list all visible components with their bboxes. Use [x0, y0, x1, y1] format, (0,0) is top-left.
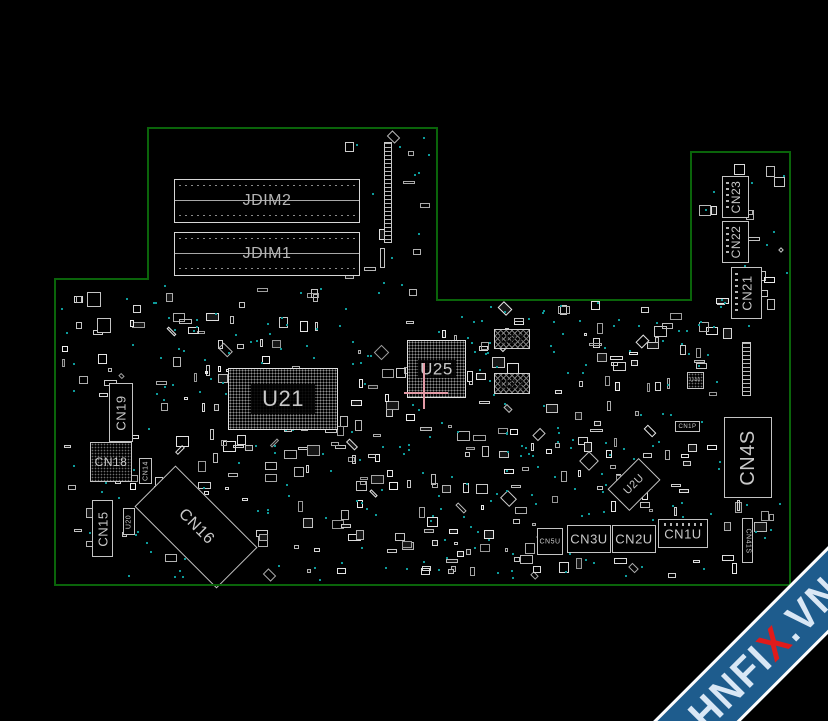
component-label-cn15: CN15	[96, 511, 109, 546]
component-label-cn1p: CN1P	[678, 424, 696, 430]
component-label-cn18: CN18	[95, 456, 128, 468]
component-cn18[interactable]: CN18	[90, 442, 132, 482]
component-label-u21: U21	[262, 388, 304, 410]
component-u27[interactable]: U27	[494, 329, 530, 349]
component-label-cn19: CN19	[115, 395, 128, 430]
component-bar1[interactable]	[380, 248, 385, 268]
component-cn16[interactable]: CN16	[134, 465, 257, 588]
component-cn14[interactable]: CN14	[139, 458, 152, 484]
component-jdim2[interactable]: JDIM2	[174, 179, 360, 223]
component-label-cn1u: CN1U	[664, 527, 701, 540]
component-cn15[interactable]: CN15	[92, 500, 113, 557]
component-dia1[interactable]	[579, 451, 599, 471]
component-label-jdim1: JDIM1	[243, 246, 292, 262]
component-cn2u[interactable]: CN2U	[612, 525, 656, 553]
component-label-cn14: CN14	[142, 461, 149, 481]
component-sq2[interactable]	[97, 318, 111, 333]
component-u40[interactable]: U40	[687, 372, 704, 389]
component-layer: JDIM2JDIM1CN23CN22CN21U21U25U27U22CN19CN…	[0, 0, 828, 721]
boardview-canvas[interactable]: JDIM2JDIM1CN23CN22CN21U21U25U27U22CN19CN…	[0, 0, 828, 721]
component-label-cn2u: CN2U	[615, 533, 652, 546]
component-label-u25: U25	[420, 361, 453, 378]
component-u22[interactable]: U22	[494, 373, 530, 394]
component-sq4[interactable]	[76, 322, 82, 329]
component-label-cn4s: CN4S	[738, 430, 758, 485]
component-cn19[interactable]: CN19	[109, 383, 133, 442]
component-sq3[interactable]	[76, 296, 82, 303]
component-label-u22: U22	[499, 377, 524, 390]
component-jdim1[interactable]: JDIM1	[174, 232, 360, 276]
component-cn21[interactable]: CN21	[731, 267, 762, 319]
component-cn4s[interactable]: CN4S	[724, 417, 772, 498]
component-label-cn21: CN21	[740, 275, 753, 310]
component-cn41s[interactable]: CN41S	[742, 518, 753, 563]
component-label-cn5u: CN5U	[539, 538, 560, 545]
component-sq1[interactable]	[87, 292, 101, 307]
component-cn3u[interactable]: CN3U	[567, 525, 611, 553]
component-cn1u[interactable]: CN1U	[658, 519, 708, 548]
component-label-cn22: CN22	[730, 226, 742, 259]
component-label-u27: U27	[499, 333, 524, 346]
component-riser1[interactable]	[384, 142, 392, 243]
component-lad2[interactable]	[742, 342, 751, 396]
component-cn5u[interactable]: CN5U	[537, 528, 563, 555]
component-label-cn16: CN16	[175, 506, 217, 548]
component-label-u20: U20	[126, 514, 133, 528]
component-u2u[interactable]: U2U	[607, 457, 660, 510]
component-u21[interactable]: U21	[228, 368, 338, 430]
component-label-cn41s: CN41S	[744, 528, 751, 553]
component-cn22[interactable]: CN22	[722, 221, 749, 263]
component-label-cn23: CN23	[730, 181, 742, 214]
component-label-jdim2: JDIM2	[243, 193, 292, 209]
component-cn23[interactable]: CN23	[722, 176, 749, 218]
component-cn1p[interactable]: CN1P	[675, 421, 700, 432]
component-label-u2u: U2U	[622, 472, 646, 496]
component-u20[interactable]: U20	[123, 508, 135, 535]
component-label-cn3u: CN3U	[570, 533, 607, 546]
component-label-u40: U40	[690, 378, 701, 383]
component-u25[interactable]: U25	[407, 340, 466, 398]
